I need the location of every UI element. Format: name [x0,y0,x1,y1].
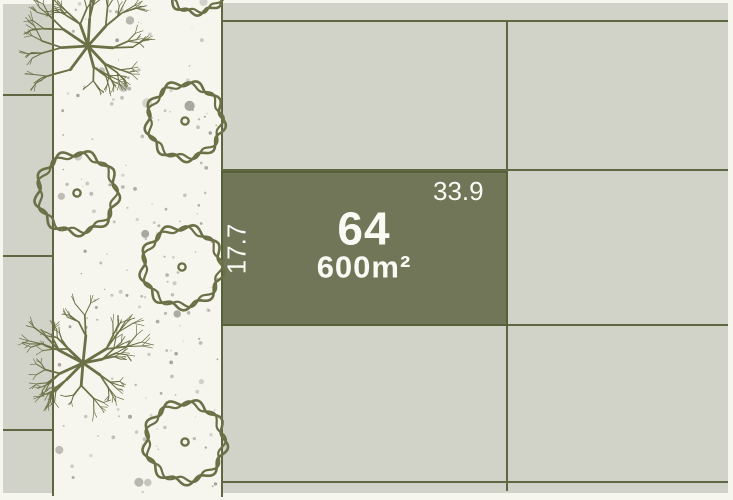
parcel [3,4,53,95]
parcel [507,325,728,482]
parcel [222,21,507,170]
plan-canvas [0,0,733,500]
lot-64-region[interactable] [222,172,507,325]
parcel [222,482,507,493]
landscape-reserve [53,0,222,500]
parcel [222,325,507,482]
parcel [3,430,53,493]
parcel [507,3,728,21]
parcel [507,482,728,493]
parcel [507,170,728,325]
parcel [222,3,507,21]
subdivision-plan: 64 600m² 33.9 17.7 [0,0,733,500]
parcel [507,21,728,170]
